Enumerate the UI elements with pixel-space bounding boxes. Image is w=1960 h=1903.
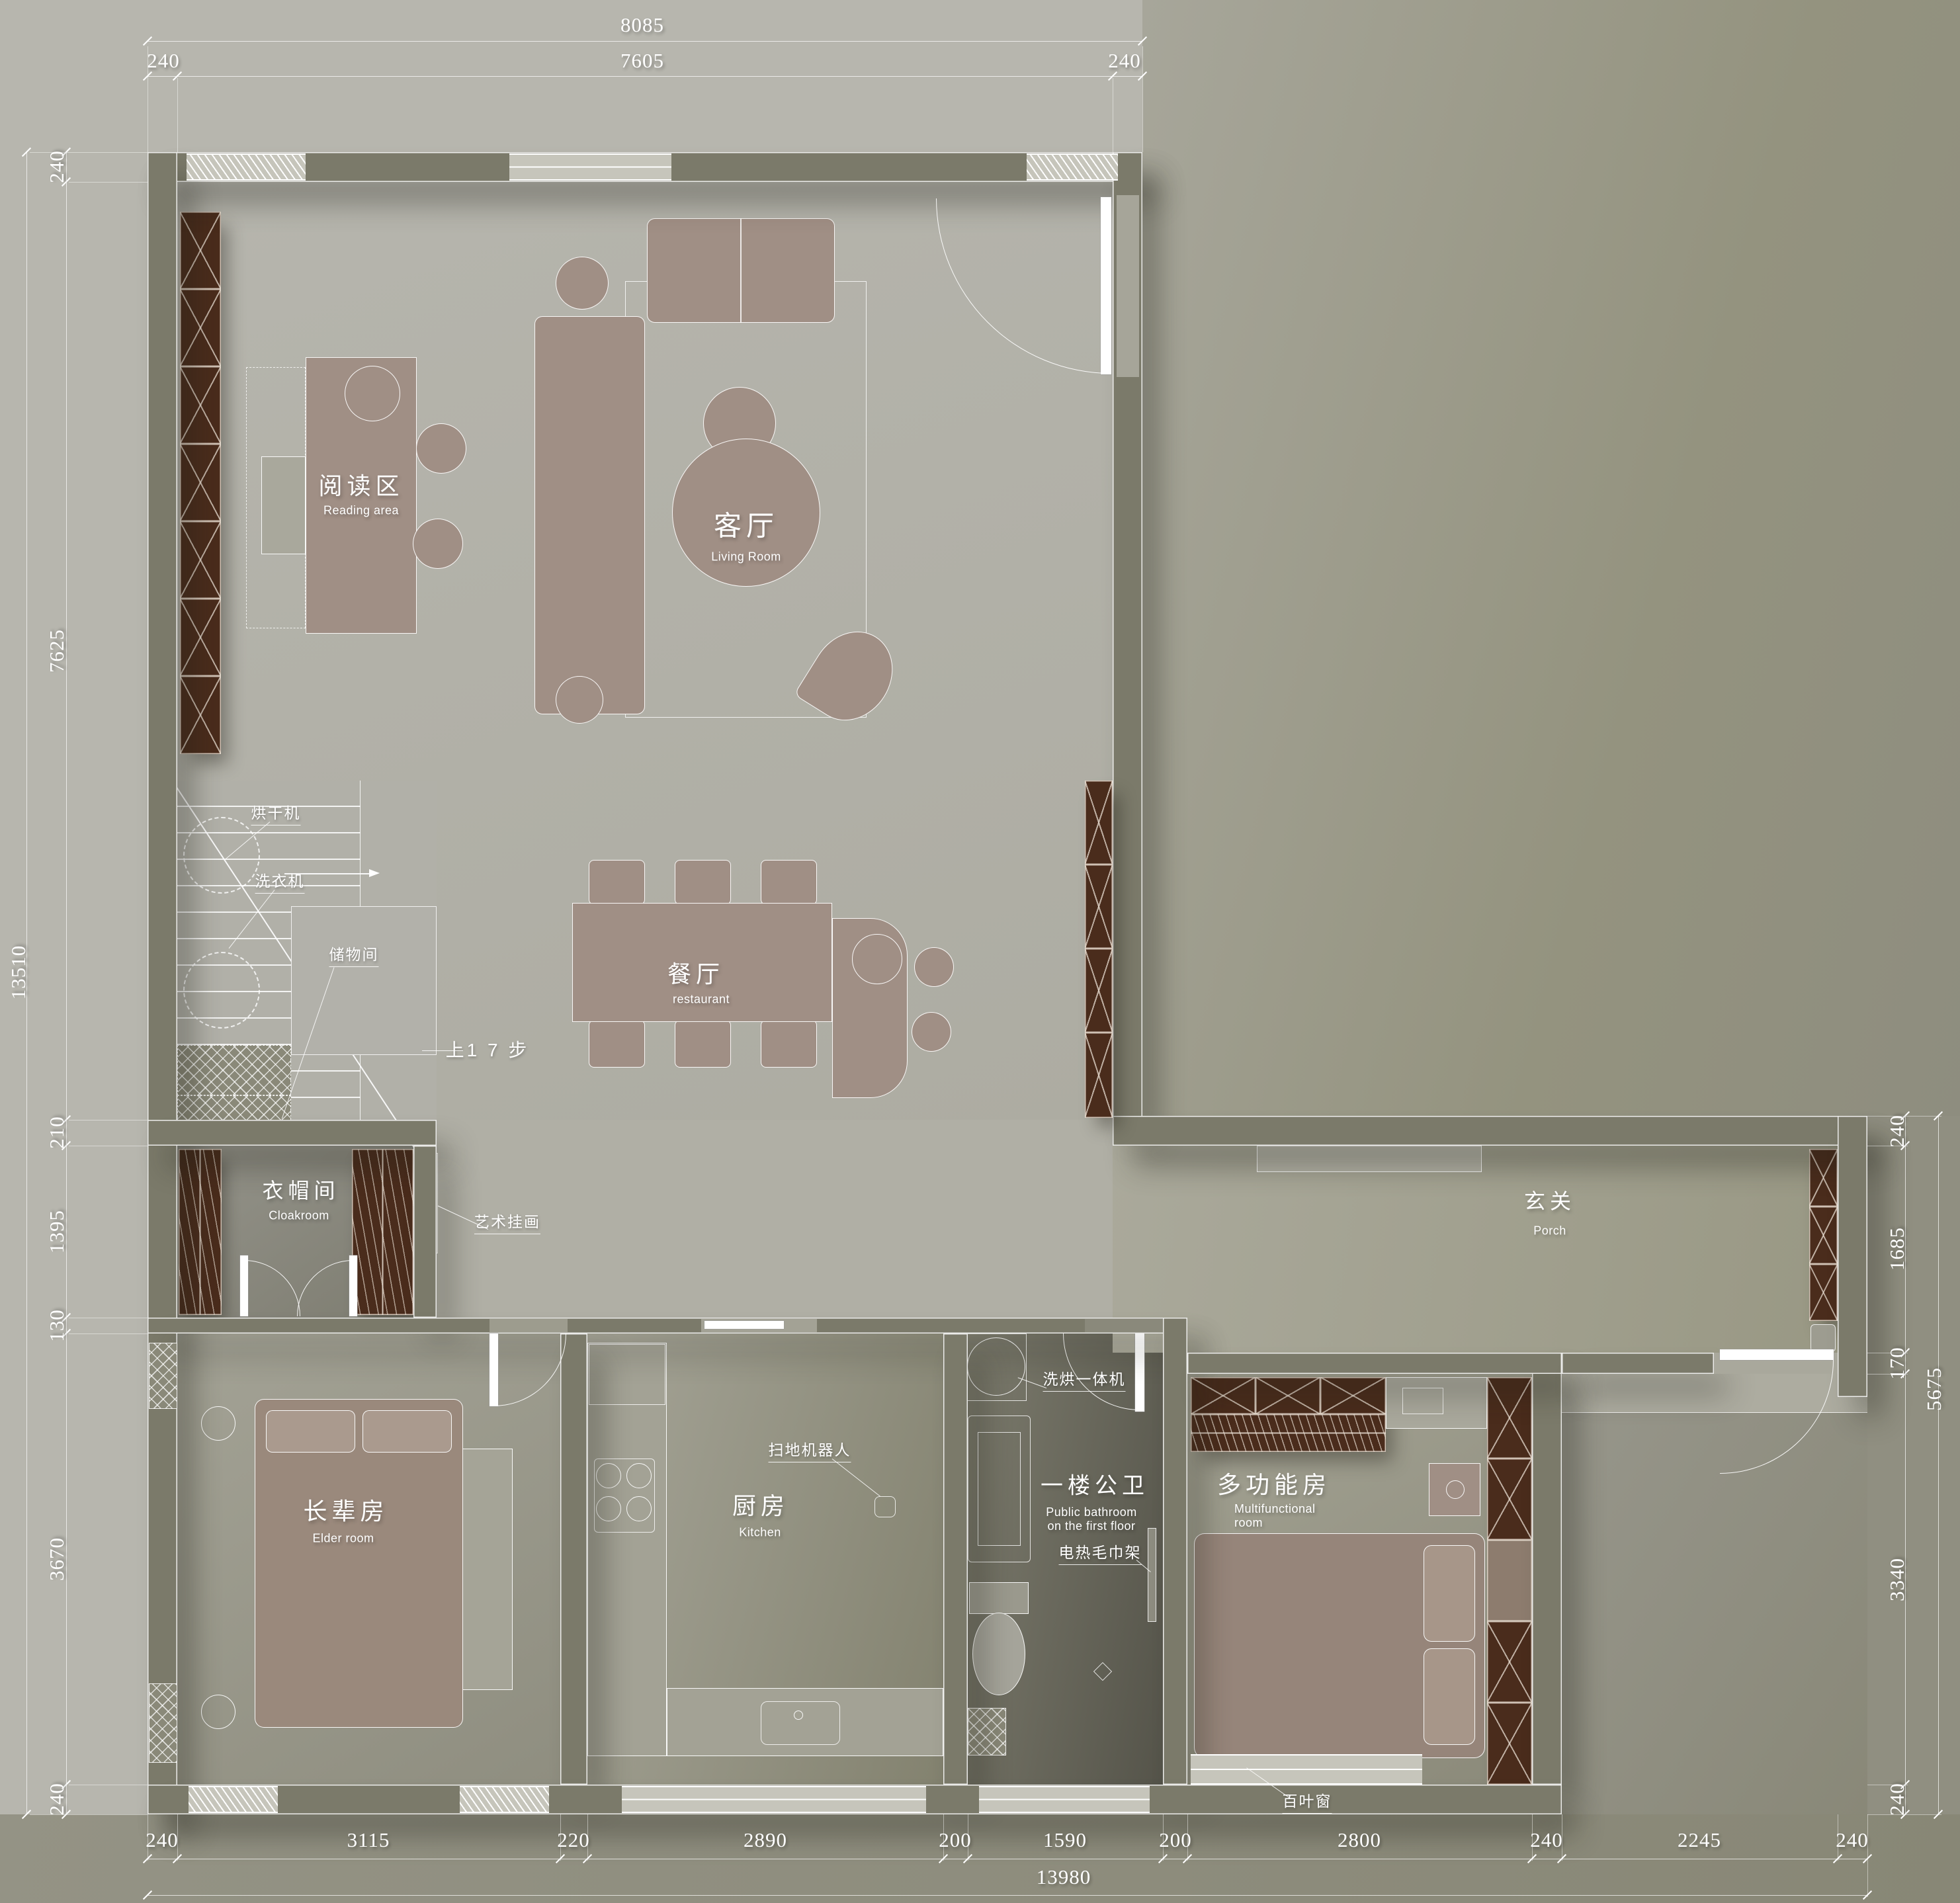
bathroom-sublabel: Public bathroom on the first floor	[1046, 1505, 1137, 1533]
shoe-cabinet-box	[1809, 1149, 1838, 1206]
towel-rack-bar	[1148, 1528, 1156, 1622]
elder-pillow-2	[362, 1410, 452, 1453]
multi-column-box	[1487, 1377, 1532, 1459]
window-top-mid	[509, 153, 671, 181]
dim-right-1: 1685	[1885, 1227, 1909, 1271]
bathroom-label: 一楼公卫	[1041, 1468, 1149, 1500]
cloakroom-sublabel: Cloakroom	[269, 1209, 329, 1223]
dim-top-0: 240	[147, 49, 180, 73]
elder-nightstand-bottom	[201, 1695, 235, 1729]
porch-bench	[1257, 1146, 1482, 1172]
window-top-right	[1027, 153, 1118, 181]
reading-area-sublabel: Reading area	[323, 504, 399, 518]
living-room-label: 客厅	[714, 504, 779, 544]
dim-bottom-total: 13980	[1037, 1865, 1091, 1889]
dryer-unit	[183, 817, 260, 894]
ext-line	[69, 1333, 148, 1334]
hall-closet-box	[1085, 781, 1113, 865]
wall-bath-multi	[1163, 1318, 1187, 1785]
reading-area-label: 阅读区	[318, 467, 404, 501]
dim-right-4: 240	[1885, 1783, 1909, 1816]
stairs-note-leader	[422, 1050, 463, 1051]
dining-chair	[589, 1020, 645, 1068]
dim-bottom-0: 240	[146, 1828, 179, 1852]
dim-bottom-9: 2245	[1678, 1828, 1721, 1852]
entry-mat	[1811, 1324, 1836, 1352]
elder-room-label: 长辈房	[303, 1492, 388, 1527]
towel-rack-annotation: 电热毛巾架	[1059, 1540, 1142, 1565]
kitchen-sublabel: Kitchen	[739, 1526, 781, 1540]
dim-line-right-chain	[1905, 1116, 1906, 1814]
ext-line	[1867, 1814, 1868, 1897]
hall-closet-box	[1085, 865, 1113, 949]
multi-right-column	[1487, 1377, 1532, 1785]
entry-door-leaf	[1720, 1349, 1834, 1360]
burner	[596, 1496, 621, 1521]
shoe-cabinet-box	[1809, 1264, 1838, 1321]
washer-annotation: 洗衣机	[255, 868, 305, 894]
multi-pillow-1	[1424, 1545, 1475, 1642]
dining-stool-1	[914, 947, 954, 987]
multi-pillow-2	[1424, 1648, 1475, 1745]
dining-chair	[761, 860, 817, 905]
cloakroom-label: 衣帽间	[262, 1174, 339, 1205]
kitchen-sink	[761, 1701, 840, 1745]
dim-right-2: 170	[1885, 1347, 1909, 1380]
multi-room-sublabel: Multifunctional room	[1234, 1502, 1316, 1530]
dining-sublabel: restaurant	[673, 993, 730, 1007]
dim-left-6: 240	[45, 1783, 69, 1816]
dim-bottom-1: 3115	[347, 1828, 390, 1852]
dim-right-0: 240	[1885, 1115, 1909, 1148]
window-elder-1	[189, 1786, 278, 1813]
porch-floor	[1113, 1146, 1838, 1353]
vacuum-robot	[874, 1496, 896, 1517]
elder-door-gap	[490, 1319, 568, 1332]
wall-entry-stub	[1562, 1353, 1714, 1374]
wall-cloak-right	[413, 1146, 437, 1318]
dim-top-2: 240	[1108, 49, 1141, 73]
wall-box-elder-bottom	[149, 1683, 177, 1763]
sink-faucet	[794, 1711, 803, 1720]
dim-bottom-2: 220	[557, 1828, 590, 1852]
dim-bottom-10: 240	[1836, 1828, 1869, 1852]
wall-elder-kitchen	[560, 1333, 587, 1785]
side-table-top	[556, 257, 609, 310]
dim-bottom-7: 2800	[1338, 1828, 1381, 1852]
burner	[596, 1463, 621, 1488]
wall-porch-bottom	[1187, 1353, 1562, 1374]
dim-right-total: 5675	[1922, 1367, 1946, 1411]
multi-column-shelf	[1487, 1540, 1532, 1621]
sofa-vertical	[534, 316, 645, 714]
wall-porch-top	[1113, 1116, 1867, 1146]
elder-room-sublabel: Elder room	[312, 1532, 374, 1546]
bath-sink-cabinet	[968, 1708, 1006, 1755]
burner	[626, 1496, 652, 1521]
ext-line	[1113, 78, 1113, 152]
multi-hanger-rail	[1191, 1414, 1386, 1452]
main-entry-gap	[1117, 195, 1139, 377]
window-top-left	[187, 153, 306, 181]
multi-column-box	[1487, 1703, 1532, 1785]
multi-cabinet-box	[1256, 1377, 1320, 1414]
multi-nightstand-lamp	[1446, 1480, 1465, 1499]
dining-chair	[675, 860, 731, 905]
porch-sublabel: Porch	[1533, 1224, 1566, 1238]
multi-room-label: 多功能房	[1217, 1466, 1331, 1500]
water-heater	[967, 1337, 1025, 1396]
wall-multi-right	[1532, 1353, 1562, 1785]
dim-bottom-3: 2890	[744, 1828, 787, 1852]
hall-closet	[1085, 781, 1113, 1118]
background-upper-right	[1142, 0, 1960, 1146]
ext-line	[69, 1146, 148, 1146]
wall-left	[148, 152, 177, 1814]
stair-arrow-head	[369, 869, 380, 877]
multi-cabinet-box	[1191, 1377, 1256, 1414]
side-desk	[261, 456, 306, 554]
ext-line	[69, 182, 148, 183]
washer-unit	[183, 952, 260, 1029]
bookshelf-box	[180, 521, 221, 599]
dining-chair	[589, 860, 645, 905]
dim-line-bottom-chain	[148, 1859, 1867, 1859]
hall-closet-box	[1085, 949, 1113, 1033]
dim-right-3: 3340	[1885, 1558, 1909, 1601]
window-kitchen	[622, 1786, 926, 1813]
table-clock	[345, 366, 400, 421]
toilet-tank	[969, 1582, 1029, 1614]
dim-line-top-chain	[148, 76, 1142, 77]
dim-left-total: 13510	[7, 945, 30, 1000]
multi-column-box	[1487, 1459, 1532, 1540]
dim-top-total: 8085	[620, 13, 664, 37]
sofa-horizontal	[647, 218, 835, 323]
dining-chair	[675, 1020, 731, 1068]
floor-plan-canvas: 阅读区 Reading area 客厅 Living Room 餐厅 resta…	[0, 0, 1960, 1903]
wall-mid	[148, 1318, 1187, 1333]
window-blinds	[1191, 1754, 1422, 1785]
dim-left-2: 210	[45, 1116, 69, 1149]
dim-bottom-8: 240	[1530, 1828, 1563, 1852]
elder-nightstand-top	[201, 1406, 235, 1441]
kitchen-slider-leaf	[704, 1321, 784, 1329]
dryer-annotation: 烘干机	[251, 800, 301, 825]
console-lamp	[852, 934, 902, 984]
bookshelf-box	[180, 676, 221, 754]
desk-item	[1402, 1388, 1443, 1414]
dining-stool-2	[912, 1012, 951, 1052]
bookshelf-box	[180, 599, 221, 676]
living-room-sublabel: Living Room	[711, 550, 781, 564]
bookshelf-box	[180, 444, 221, 521]
hall-closet-box	[1085, 1033, 1113, 1118]
dim-line-top-total	[148, 41, 1142, 42]
dim-bottom-4: 200	[939, 1828, 972, 1852]
dining-label: 餐厅	[667, 955, 724, 990]
multi-cabinet-box	[1320, 1377, 1386, 1414]
shower-cabinet-inner	[978, 1432, 1021, 1546]
reading-stool-2	[413, 519, 463, 569]
elder-pillow-1	[266, 1410, 355, 1453]
dim-left-0: 240	[45, 150, 69, 183]
bookshelf-box	[180, 212, 221, 289]
porch-label: 玄关	[1524, 1185, 1576, 1215]
dim-bottom-5: 1590	[1043, 1828, 1087, 1852]
washer-dryer-annotation: 洗烘一体机	[1043, 1367, 1126, 1392]
bookshelf	[180, 212, 221, 754]
art-annotation: 艺术挂画	[474, 1209, 540, 1234]
shoe-cabinet-box	[1809, 1206, 1838, 1264]
dim-line-right-total	[1938, 1116, 1939, 1814]
kitchen-fridge	[589, 1344, 665, 1405]
wall-kitchen-bath	[943, 1333, 968, 1785]
multi-top-cabinet	[1191, 1377, 1386, 1452]
side-table-bottom	[556, 676, 603, 724]
stair-landing-box	[177, 1045, 291, 1095]
robot-annotation: 扫地机器人	[769, 1437, 851, 1462]
ext-line	[69, 1318, 148, 1318]
bookshelf-box	[180, 366, 221, 444]
bath-door-gap	[1085, 1319, 1163, 1332]
storage-annotation: 储物间	[329, 942, 379, 967]
window-elder-2	[460, 1786, 549, 1813]
dim-bottom-6: 200	[1159, 1828, 1192, 1852]
stairs-note: 上1 7 步	[446, 1036, 530, 1062]
bookshelf-box	[180, 289, 221, 366]
dim-left-4: 130	[45, 1309, 69, 1342]
burner	[626, 1463, 652, 1488]
ext-line	[177, 78, 178, 152]
shoe-cabinet	[1809, 1149, 1838, 1321]
dim-left-1: 7625	[45, 629, 69, 673]
window-bath	[979, 1786, 1150, 1813]
toilet-bowl	[972, 1613, 1025, 1695]
reading-stool-1	[416, 423, 466, 474]
wall-living-bottom	[148, 1120, 437, 1146]
multi-column-box	[1487, 1621, 1532, 1703]
dining-chair	[761, 1020, 817, 1068]
blinds-annotation: 百叶窗	[1283, 1789, 1332, 1814]
dim-left-3: 1395	[45, 1210, 69, 1253]
ext-line	[69, 1785, 148, 1785]
understair-storage	[291, 906, 437, 1055]
ext-line	[69, 1120, 148, 1121]
cloak-wardrobe-left	[179, 1149, 222, 1315]
dim-top-1: 7605	[620, 49, 664, 73]
dim-line-bottom-total	[148, 1895, 1867, 1896]
wall-box-elder-top	[149, 1343, 177, 1409]
courtyard	[1562, 1374, 1867, 1814]
kitchen-label: 厨房	[732, 1487, 789, 1521]
ext-line	[1142, 46, 1143, 152]
dim-left-5: 3670	[45, 1537, 69, 1581]
wall-outer-right	[1838, 1116, 1867, 1397]
cloak-wardrobe-right	[352, 1149, 413, 1315]
